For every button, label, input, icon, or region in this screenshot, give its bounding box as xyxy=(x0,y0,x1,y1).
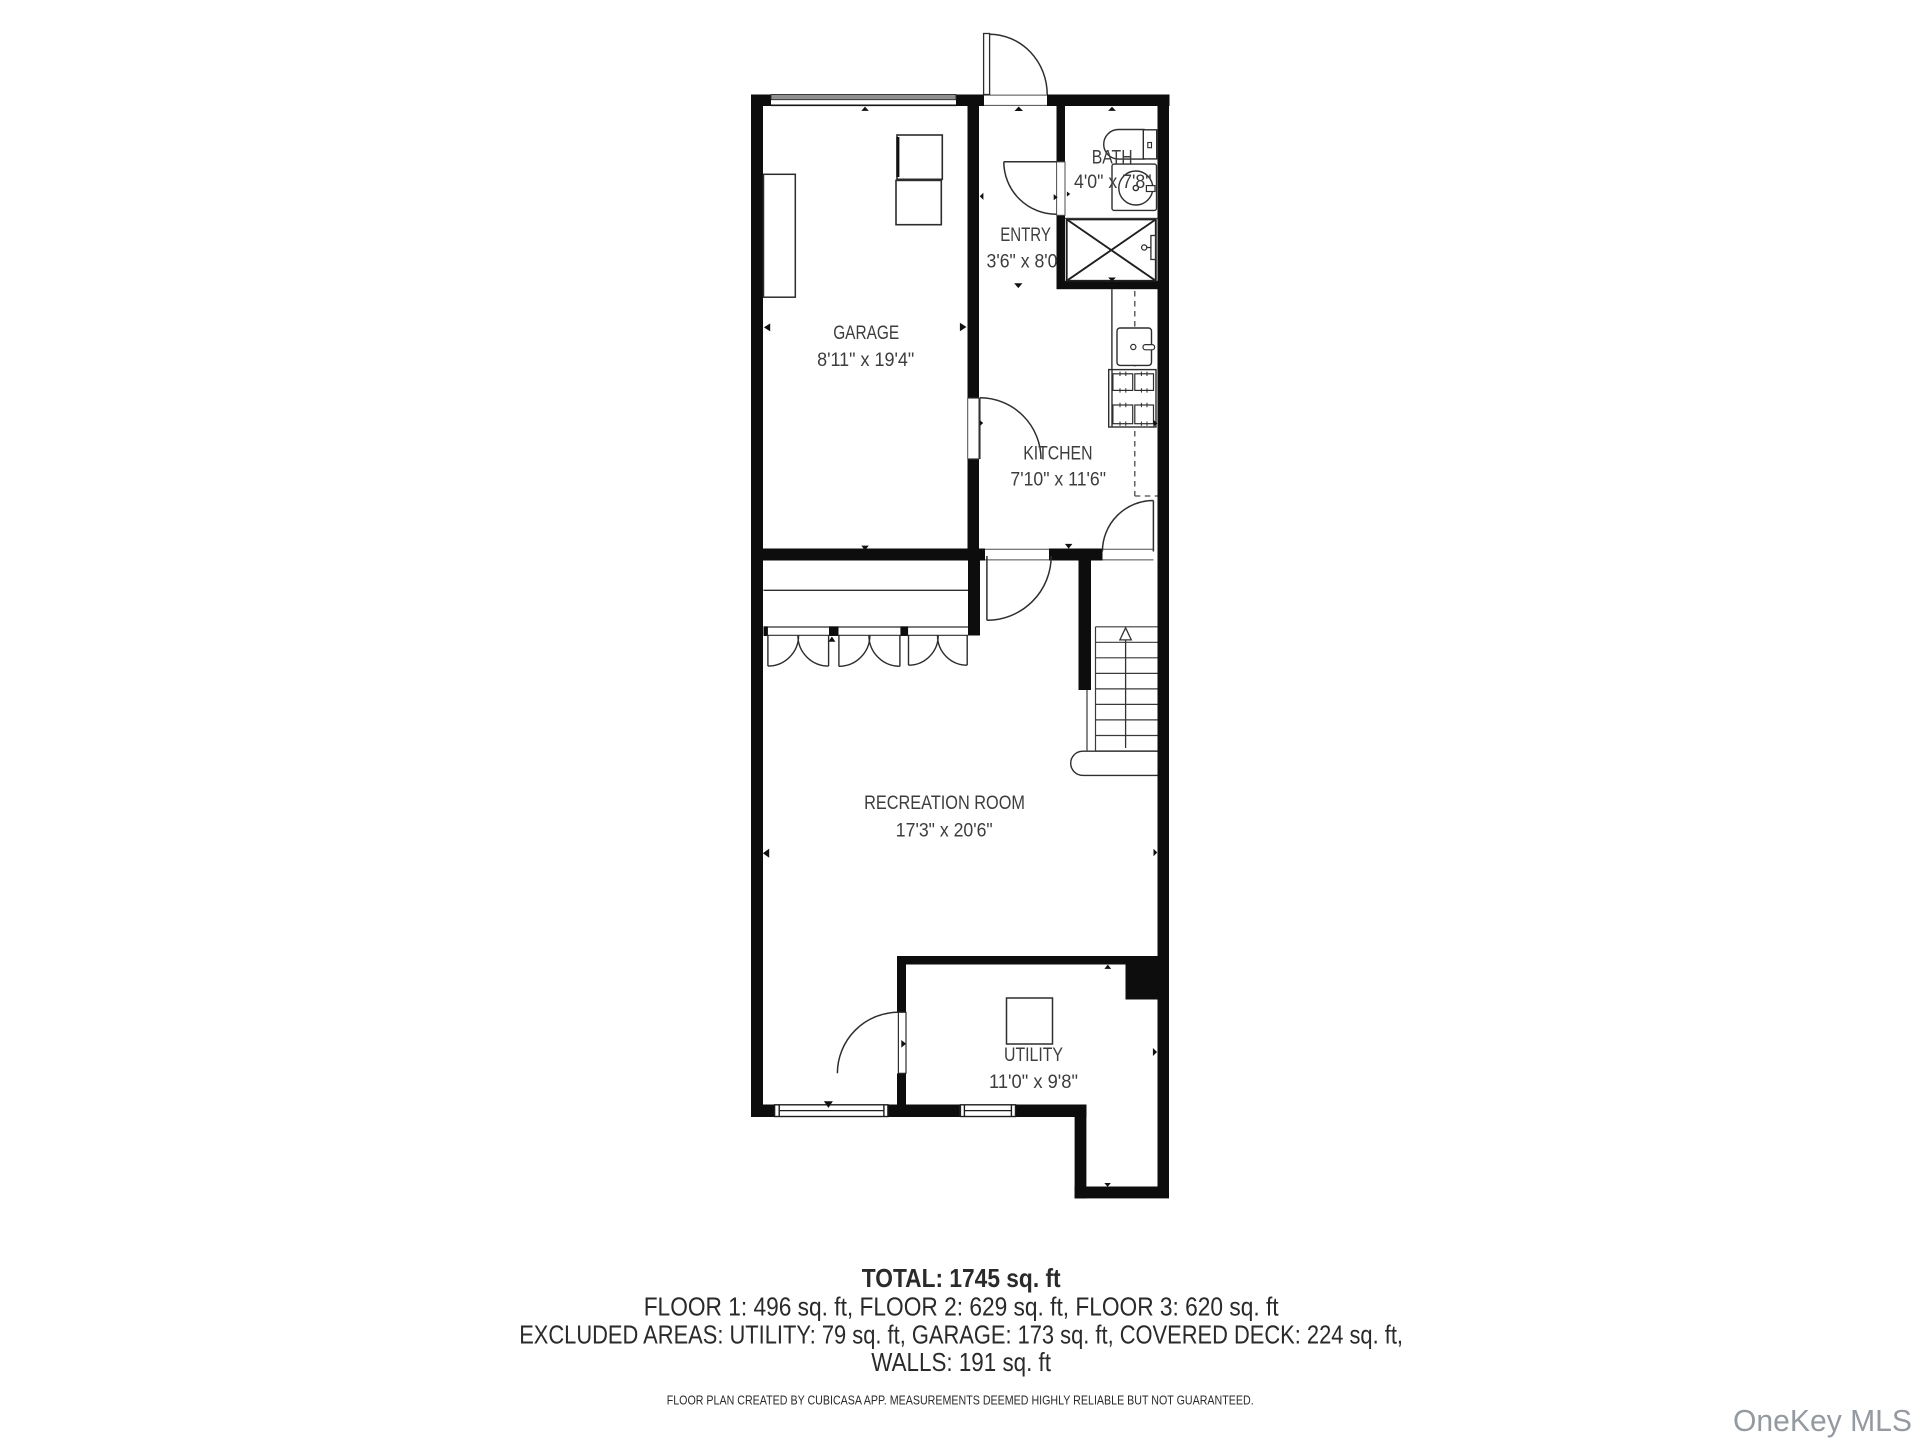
svg-text:GARAGE: GARAGE xyxy=(833,323,899,344)
svg-text:8'11" x 19'4": 8'11" x 19'4" xyxy=(817,350,914,371)
svg-text:4'0" x 7'8": 4'0" x 7'8" xyxy=(1074,172,1152,193)
svg-text:17'3" x 20'6": 17'3" x 20'6" xyxy=(896,821,993,842)
svg-text:EXCLUDED AREAS: UTILITY: 79 sq: EXCLUDED AREAS: UTILITY: 79 sq. ft, GARA… xyxy=(519,1320,1403,1350)
svg-text:BATH: BATH xyxy=(1092,148,1133,169)
svg-text:KITCHEN: KITCHEN xyxy=(1023,444,1092,465)
svg-text:TOTAL: 1745 sq. ft: TOTAL: 1745 sq. ft xyxy=(862,1263,1061,1293)
svg-text:UTILITY: UTILITY xyxy=(1004,1045,1063,1066)
svg-text:ENTRY: ENTRY xyxy=(1000,225,1051,246)
svg-text:FLOOR PLAN CREATED BY CUBICASA: FLOOR PLAN CREATED BY CUBICASA APP. MEAS… xyxy=(667,1393,1254,1408)
svg-text:11'0" x 9'8": 11'0" x 9'8" xyxy=(989,1072,1078,1093)
svg-text:WALLS: 191 sq. ft: WALLS: 191 sq. ft xyxy=(871,1347,1051,1377)
svg-text:3'6" x 8'0: 3'6" x 8'0 xyxy=(987,251,1058,272)
svg-text:OneKey MLS: OneKey MLS xyxy=(1733,1403,1912,1438)
svg-text:RECREATION ROOM: RECREATION ROOM xyxy=(864,793,1025,814)
svg-text:7'10" x 11'6": 7'10" x 11'6" xyxy=(1010,469,1106,490)
svg-text:FLOOR 1: 496 sq. ft, FLOOR 2:: FLOOR 1: 496 sq. ft, FLOOR 2: 629 sq. ft… xyxy=(644,1292,1280,1322)
